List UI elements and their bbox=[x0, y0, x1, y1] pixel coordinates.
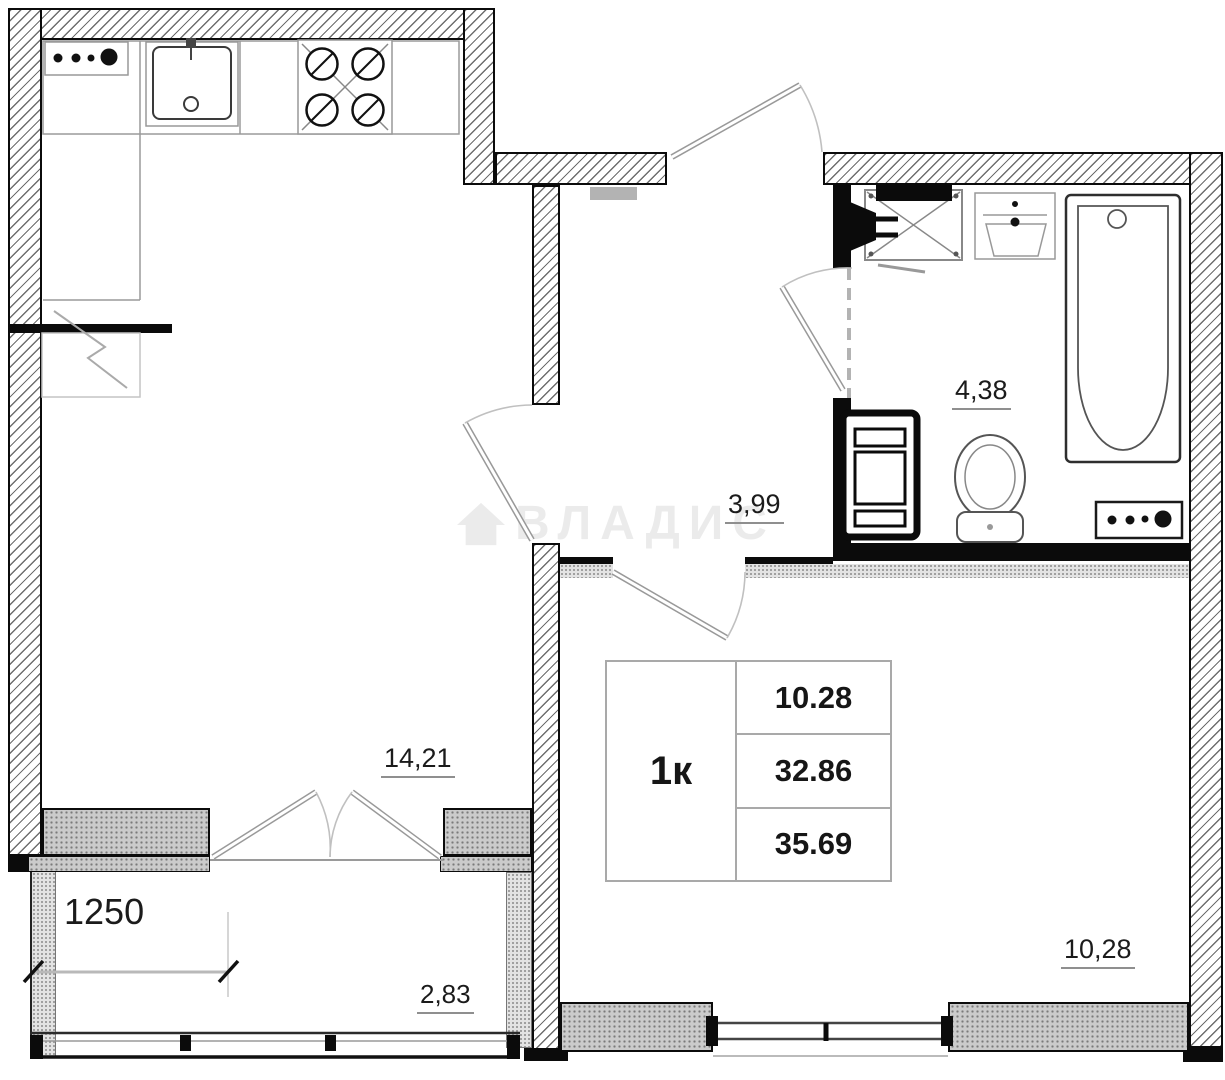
towel-rail-icon bbox=[1096, 502, 1182, 538]
wall-divider-upper bbox=[532, 185, 560, 405]
wall-entry-left bbox=[495, 152, 667, 185]
bathroom-wall-lower bbox=[833, 398, 851, 545]
living-area-value: 32.86 bbox=[737, 735, 890, 808]
wall-top-right bbox=[823, 152, 1223, 185]
balcony-right-glazing bbox=[506, 872, 532, 1048]
room-area-value: 10.28 bbox=[737, 662, 890, 735]
bathtub-icon bbox=[1066, 195, 1180, 462]
apartment-info-table: 1к 10.28 32.86 35.69 bbox=[605, 660, 892, 882]
kitchen-counter bbox=[43, 41, 459, 300]
washing-machine-icon bbox=[865, 184, 962, 272]
bedroom-wall-left-seg bbox=[560, 557, 613, 564]
cooktop-controls-icon bbox=[45, 42, 128, 75]
water-tap-icon bbox=[850, 202, 898, 251]
kitchen-counter-stub bbox=[8, 324, 172, 333]
entry-door bbox=[672, 85, 822, 157]
bathroom-floor-wall bbox=[833, 543, 1189, 561]
living-window-sill-right bbox=[443, 808, 532, 856]
living-outer-sill-right bbox=[440, 856, 532, 872]
floor-plan: ВЛАДИС bbox=[0, 0, 1225, 1080]
balcony-doors bbox=[210, 792, 443, 860]
washing-machine-2-icon bbox=[843, 413, 917, 537]
right-wall-end-cap bbox=[1183, 1046, 1223, 1062]
watermark-house-icon bbox=[455, 500, 507, 548]
entry-threshold-box bbox=[590, 187, 637, 200]
living-window-sill-left bbox=[42, 808, 210, 856]
bathroom-area-label: 4,38 bbox=[952, 375, 1011, 410]
bathroom-wall-upper bbox=[833, 183, 851, 268]
bedroom-door bbox=[613, 572, 745, 638]
wall-entry-vertical bbox=[463, 8, 495, 185]
balcony-width-dimension: 1250 bbox=[64, 891, 144, 933]
balcony-left-glazing bbox=[30, 872, 56, 1058]
wall-left-outer bbox=[8, 8, 42, 872]
wall-divider-lower bbox=[532, 543, 560, 1058]
bathroom-door bbox=[782, 268, 852, 398]
wall-top-kitchen bbox=[8, 8, 465, 40]
kitchen-sink-icon bbox=[146, 38, 238, 126]
total-area-value: 35.69 bbox=[737, 809, 890, 880]
bedroom-window-sill-right bbox=[948, 1002, 1189, 1052]
kitchen-living-area-label: 14,21 bbox=[381, 743, 455, 778]
bedroom-window bbox=[706, 1016, 953, 1056]
bedroom-wall-right-seg bbox=[745, 557, 833, 564]
bedroom-window-sill-left bbox=[560, 1002, 713, 1052]
apartment-type-label: 1к bbox=[607, 662, 737, 880]
wall-right-outer bbox=[1189, 152, 1223, 1052]
bedroom-wall-dotted-right bbox=[745, 564, 1189, 578]
bedroom-wall-dotted-left bbox=[560, 564, 613, 578]
bedroom-area-label: 10,28 bbox=[1061, 934, 1135, 969]
balcony-area-label: 2,83 bbox=[417, 979, 474, 1014]
balcony-railing bbox=[30, 1033, 520, 1059]
bathroom-sink-icon bbox=[975, 193, 1055, 259]
stove-icon bbox=[298, 40, 392, 134]
toilet-icon bbox=[955, 435, 1025, 542]
living-outer-sill-left bbox=[28, 856, 210, 872]
hallway-area-label: 3,99 bbox=[725, 489, 784, 524]
